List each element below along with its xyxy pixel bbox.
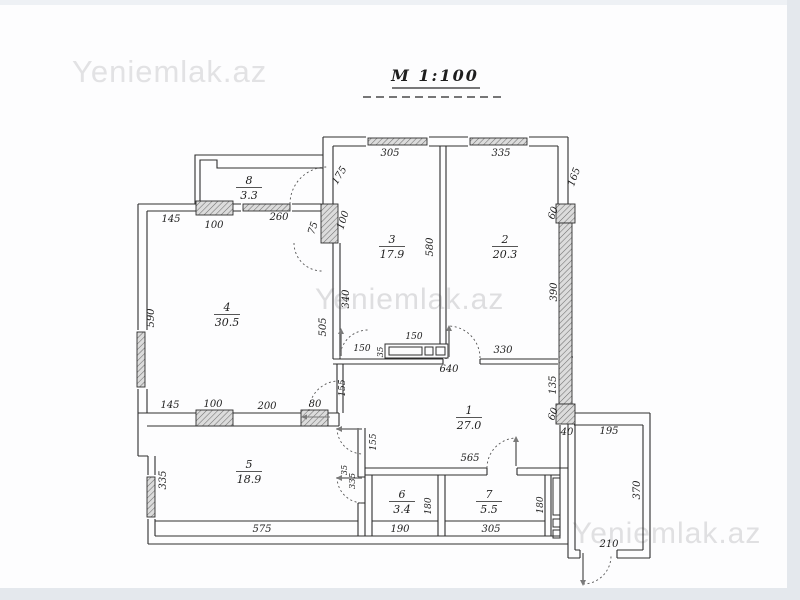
window-room4-top (243, 204, 290, 211)
wall-block (196, 201, 233, 215)
room-label: 63.4 (389, 488, 415, 516)
dimension-label: 640 (439, 364, 459, 375)
room-label: 317.9 (379, 233, 405, 261)
dimension-label: 580 (425, 237, 436, 257)
dimension-label: 575 (252, 524, 271, 535)
room-number: 8 (246, 174, 253, 187)
room-label: 75.5 (476, 488, 502, 516)
wall-block (321, 204, 338, 243)
room-number: 3 (389, 233, 396, 246)
hatched-walls (137, 138, 575, 517)
dimension-label: 305 (380, 148, 399, 159)
room-area: 30.5 (215, 316, 240, 329)
window-room2 (470, 138, 527, 145)
room-area: 3.3 (240, 189, 258, 202)
scale-title: M 1:100 (363, 66, 503, 97)
room-number: 2 (501, 233, 509, 246)
dimension-label: 145 (160, 400, 179, 411)
room-area: 3.4 (393, 503, 411, 516)
dimension-label: 150 (405, 332, 422, 342)
dimension-label: 260 (268, 212, 289, 223)
dimension-label: 80 (309, 399, 322, 410)
room-number: 1 (466, 404, 473, 417)
room-area: 27.0 (456, 419, 482, 432)
dimension-label: 155 (369, 433, 379, 450)
dimension-label: 335 (348, 473, 358, 489)
dimension-label: 330 (493, 345, 513, 356)
window-room5-left (147, 477, 155, 517)
dimension-label: 180 (536, 496, 546, 513)
dimension-label: 390 (549, 282, 560, 302)
floor-plan-svg: M 1:100 (0, 0, 800, 600)
room-area: 5.5 (480, 503, 498, 516)
window-room4-left (137, 332, 145, 387)
room-area: 20.3 (492, 248, 518, 261)
dimension-label: 505 (318, 317, 329, 336)
dimension-label: 590 (146, 308, 157, 328)
dimension-label: 335 (491, 148, 510, 159)
room-label: 220.3 (492, 233, 518, 261)
room-label: 430.5 (214, 301, 240, 329)
shaft-fixtures (553, 478, 560, 538)
dimension-label: 35 (376, 347, 386, 358)
dimension-label: 100 (204, 220, 224, 231)
room-number: 7 (486, 488, 493, 501)
wall-block (196, 410, 233, 426)
kitchen-counter (385, 344, 448, 358)
dimension-label: 200 (256, 401, 277, 412)
dimension-label: 145 (161, 214, 180, 225)
room-number: 5 (246, 458, 253, 471)
dimension-label: 165 (566, 166, 583, 188)
dimension-label: 100 (203, 399, 223, 410)
room-area: 18.9 (237, 473, 262, 486)
dimension-label: 155 (338, 379, 348, 396)
dimension-label: 335 (158, 470, 169, 489)
dimension-label: 180 (424, 497, 434, 514)
room-label: 518.9 (236, 458, 262, 486)
dimension-label: 565 (460, 453, 479, 464)
dimension-label: 40 (560, 427, 574, 438)
room-label: 127.0 (456, 404, 482, 432)
dimension-label: 340 (341, 289, 352, 309)
window-wall-east (559, 223, 572, 404)
dimension-label: 190 (390, 524, 410, 535)
dimension-label: 150 (353, 344, 370, 354)
dimension-label: 135 (548, 375, 559, 394)
room-number: 4 (223, 301, 231, 314)
dimension-label: 305 (481, 524, 500, 535)
scale-title-text: M 1:100 (390, 66, 479, 85)
room-label: 83.3 (236, 174, 262, 202)
dimension-label: 75 (306, 220, 320, 236)
dimension-label: 210 (598, 539, 619, 550)
dimension-label: 370 (632, 480, 643, 500)
dimension-label: 195 (599, 426, 618, 437)
room-area: 17.9 (380, 248, 405, 261)
window-room3 (368, 138, 427, 145)
room-number: 6 (399, 488, 406, 501)
